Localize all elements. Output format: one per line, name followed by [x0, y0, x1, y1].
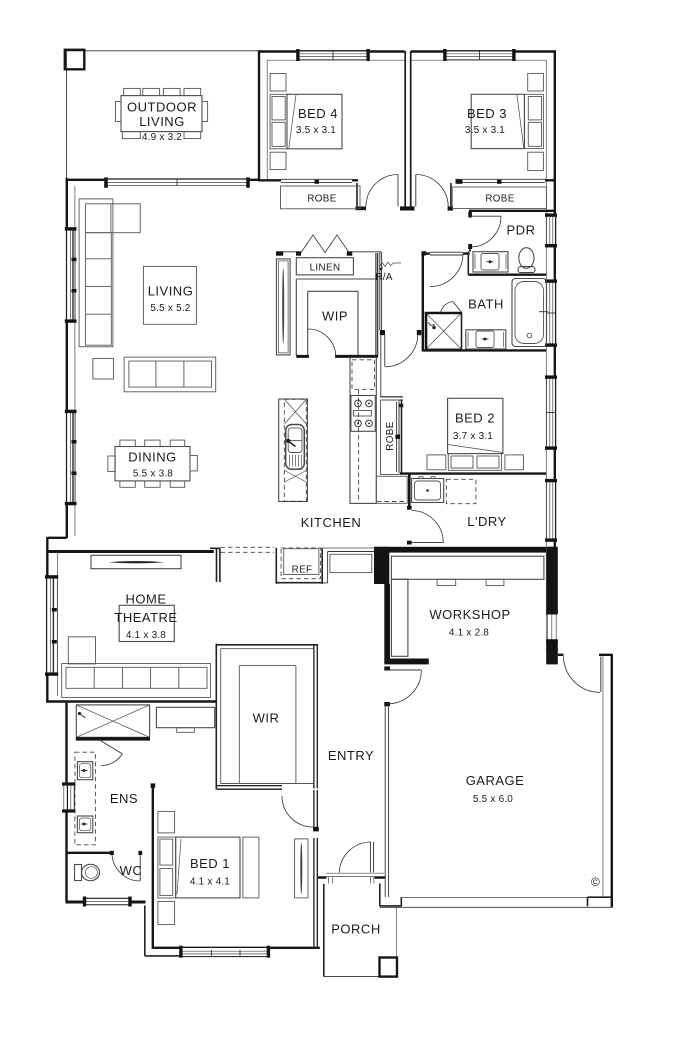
svg-text:ENTRY: ENTRY	[328, 748, 374, 763]
svg-text:OUTDOOR: OUTDOOR	[127, 100, 197, 115]
svg-text:ROBE: ROBE	[307, 194, 336, 205]
svg-text:BED 4: BED 4	[298, 106, 338, 121]
svg-text:ROBE: ROBE	[485, 194, 514, 205]
svg-text:KITCHEN: KITCHEN	[301, 515, 362, 530]
svg-text:GARAGE: GARAGE	[466, 773, 525, 788]
svg-text:BED 2: BED 2	[455, 411, 495, 426]
svg-text:4.1 x 2.8: 4.1 x 2.8	[449, 628, 489, 639]
svg-text:WIP: WIP	[322, 309, 348, 324]
svg-text:WIR: WIR	[253, 711, 280, 726]
svg-text:BED 3: BED 3	[467, 106, 507, 121]
svg-text:4.1 x 4.1: 4.1 x 4.1	[190, 877, 230, 888]
svg-text:ROBE: ROBE	[385, 421, 396, 450]
svg-text:R/A: R/A	[375, 272, 392, 283]
svg-text:L'DRY: L'DRY	[467, 514, 506, 529]
svg-text:HOME: HOME	[126, 592, 167, 607]
svg-text:PORCH: PORCH	[331, 922, 380, 937]
svg-text:LIVING: LIVING	[148, 284, 194, 299]
svg-text:REF: REF	[292, 565, 313, 576]
svg-text:5.5 x 3.8: 5.5 x 3.8	[133, 469, 173, 480]
svg-text:©: ©	[591, 875, 600, 889]
svg-text:DINING: DINING	[128, 449, 177, 464]
svg-text:WC: WC	[120, 863, 143, 878]
svg-text:WORKSHOP: WORKSHOP	[429, 607, 510, 622]
svg-text:5.5 x 5.2: 5.5 x 5.2	[150, 303, 190, 314]
svg-text:THEATRE: THEATRE	[114, 610, 177, 625]
svg-text:3.5 x 3.1: 3.5 x 3.1	[296, 125, 336, 136]
svg-text:LIVING: LIVING	[139, 114, 185, 129]
svg-text:3.5 x 3.1: 3.5 x 3.1	[465, 125, 505, 136]
svg-text:BED 1: BED 1	[190, 856, 230, 871]
svg-text:4.1 x 3.8: 4.1 x 3.8	[126, 630, 166, 641]
svg-text:ENS: ENS	[110, 791, 138, 806]
svg-text:BATH: BATH	[468, 297, 504, 312]
svg-text:PDR: PDR	[507, 223, 536, 238]
svg-text:LINEN: LINEN	[310, 263, 341, 274]
svg-text:5.5 x 6.0: 5.5 x 6.0	[473, 794, 513, 805]
svg-text:3.7 x 3.1: 3.7 x 3.1	[453, 431, 493, 442]
svg-text:4.9 x 3.2: 4.9 x 3.2	[142, 132, 182, 143]
